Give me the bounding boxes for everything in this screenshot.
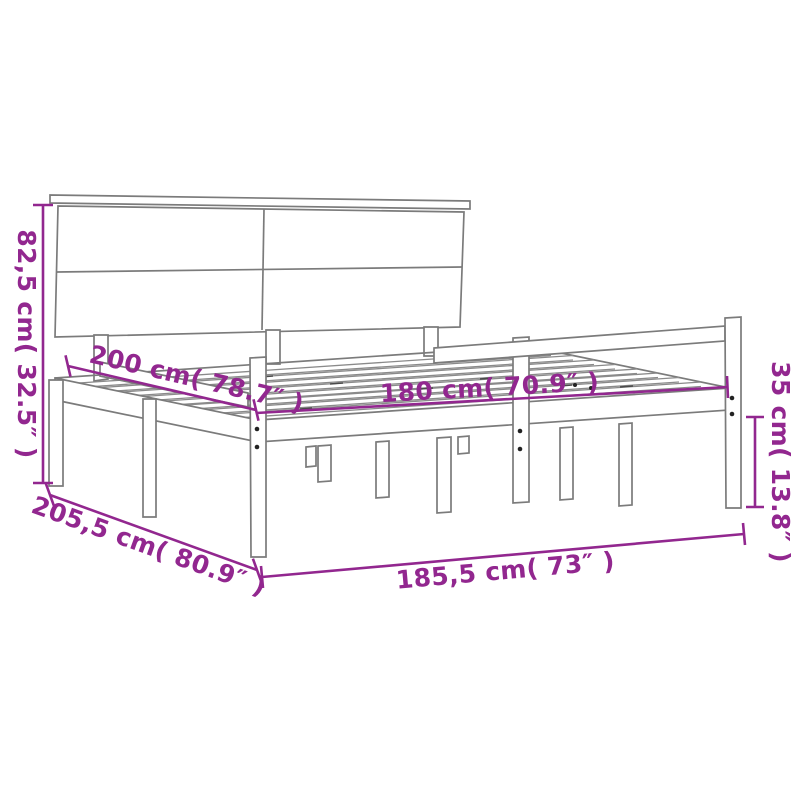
post-bolt (730, 396, 735, 401)
post-bolt (255, 445, 260, 450)
post-bolt (518, 429, 523, 434)
leg-left-middle (143, 399, 156, 517)
leg-inner-stub (306, 446, 316, 467)
dimension-label-side-rail-height: 35 cm( 13.8″ ) (766, 361, 795, 563)
dimension-headboard-height: 82,5 cm( 32.5″ ) (12, 205, 53, 483)
dimension-label-headboard-height: 82,5 cm( 32.5″ ) (12, 229, 41, 458)
post-bolt (255, 427, 260, 432)
dimension-overall-width: 185,5 cm( 73″ ) (261, 523, 745, 595)
headboard-post-center (266, 330, 280, 364)
right-rail-mid-post (513, 337, 529, 503)
dimension-side-rail-height: 35 cm( 13.8″ ) (746, 361, 795, 563)
leg-inner-4 (560, 427, 573, 500)
dimension-label-overall-width: 185,5 cm( 73″ ) (395, 546, 616, 594)
post-bolt (730, 412, 735, 417)
leg-front-left (49, 380, 63, 486)
leg-inner-1 (318, 445, 331, 482)
leg-inner-2 (376, 441, 389, 498)
leg-inner-stub-2 (458, 436, 469, 454)
bed-frame-dimension-diagram: 82,5 cm( 32.5″ ) 200 cm( 78.7″ ) 180 cm(… (0, 0, 800, 800)
leg-inner-5 (619, 423, 632, 506)
post-bolt (518, 447, 523, 452)
leg-inner-3 (437, 437, 451, 513)
